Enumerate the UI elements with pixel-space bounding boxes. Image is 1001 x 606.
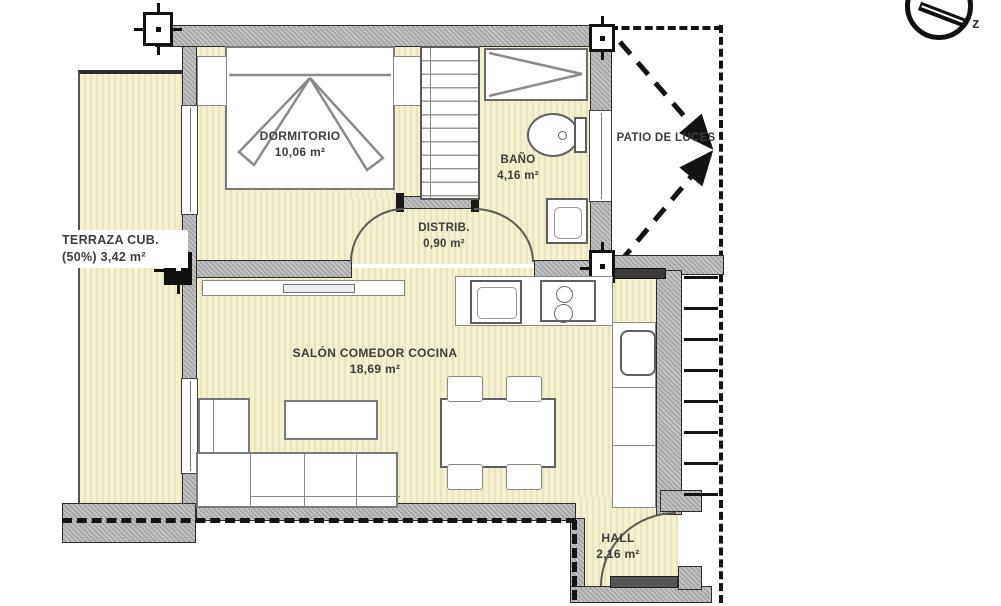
sideboard-detail [283, 284, 355, 293]
site-boundary-bottom [62, 518, 576, 523]
pillar-center-mark [156, 27, 161, 32]
counter-divider [613, 387, 655, 388]
room-area: 2,16 m² [578, 546, 658, 562]
chair [506, 376, 542, 402]
coffee-table [284, 400, 378, 440]
pillar [589, 24, 615, 52]
window-mullion [601, 113, 602, 199]
dining-table [440, 398, 556, 468]
room-terraza [78, 70, 188, 512]
kitchen-sink-unit [470, 280, 522, 324]
patio-diagonal-lines [610, 28, 722, 276]
pillar-axis-tick [601, 242, 604, 251]
room-label-patio: PATIO DE LUCES [612, 131, 720, 147]
nightstand-left [197, 56, 227, 106]
pillar-center-mark [600, 264, 605, 269]
sofa [196, 452, 398, 508]
sofa-seat-divider [356, 454, 357, 506]
kitchen-sink-right [620, 330, 656, 376]
bathroom-sink [546, 198, 588, 244]
room-label-bano: BAÑO 4,16 m² [468, 153, 568, 184]
room-area: 10,06 m² [225, 144, 375, 160]
armchair-armrest [213, 400, 214, 452]
room-label-dormitorio: DORMITORIO 10,06 m² [225, 128, 375, 160]
toilet-flush-button [558, 131, 567, 140]
room-name: SALÓN COMEDOR COCINA [275, 345, 475, 361]
pillar-axis-tick [157, 45, 160, 55]
kitchen-sink-basin [477, 287, 517, 319]
sofa-seat-divider [250, 454, 251, 506]
window-kitchen-patio [614, 268, 666, 279]
toilet [527, 113, 579, 157]
wardrobe-divider [430, 48, 431, 198]
room-name: TERRAZA CUB. [62, 232, 188, 249]
pillar [143, 12, 173, 46]
room-name: HALL [578, 530, 658, 546]
burner [554, 304, 573, 323]
sofa-seat-divider [304, 454, 305, 506]
sink-basin [554, 207, 582, 239]
hob [540, 280, 596, 322]
counter-divider [613, 445, 655, 446]
chair [447, 376, 483, 402]
pillar-axis-tick [157, 3, 160, 13]
stairs [684, 276, 718, 518]
window-mullion [190, 108, 191, 212]
room-name: DISTRIB. [398, 221, 490, 237]
pillar-axis-tick [134, 28, 144, 31]
entrance-door-leaf [610, 576, 678, 588]
chair [506, 464, 542, 490]
room-label-hall: HALL 2,16 m² [578, 530, 658, 562]
site-boundary-step [572, 520, 577, 600]
pillar-axis-tick [601, 16, 604, 25]
room-label-salon: SALÓN COMEDOR COCINA 18,69 m² [275, 345, 475, 377]
chair [447, 464, 483, 490]
armchair [198, 398, 250, 454]
pillar-axis-tick [177, 284, 180, 294]
pillar-axis-tick [154, 269, 165, 272]
room-name: DORMITORIO [225, 128, 375, 144]
window-bano-patio [589, 110, 612, 202]
burner [556, 286, 573, 303]
sofa-front-edge [250, 496, 400, 497]
window-mullion [190, 381, 191, 471]
wall-hall-right-bottom [678, 566, 702, 590]
toilet-cistern [574, 117, 587, 153]
bed [225, 46, 395, 190]
room-label-terraza: TERRAZA CUB. (50%) 3,42 m² [60, 230, 188, 268]
room-area: (50%) 3,42 m² [62, 249, 188, 266]
pillar-axis-tick [580, 267, 590, 270]
room-area: 0,90 m² [398, 237, 490, 253]
room-label-distrib: DISTRIB. 0,90 m² [398, 221, 490, 252]
wall-top [155, 25, 612, 47]
wall-dormitorio-salon [196, 260, 352, 278]
shower-icon [486, 50, 586, 99]
room-name: BAÑO [468, 153, 568, 169]
pillar-axis-tick [172, 28, 182, 31]
compass-label: z [972, 14, 980, 34]
wall-salon-right [656, 270, 682, 515]
bed-linen-icon [227, 48, 393, 188]
room-area: 18,69 m² [275, 361, 475, 377]
shower-tray [484, 48, 588, 101]
nightstand-right [393, 56, 421, 106]
floor-plan: z DORMITORIO 10,06 m² BAÑO 4,16 m² PATIO… [0, 0, 1001, 606]
window-terraza-dormitorio [181, 105, 198, 215]
wall-terraza-bottom [62, 503, 196, 543]
pillar-center-mark [600, 36, 605, 41]
sideboard [202, 280, 405, 296]
room-area: 4,16 m² [468, 169, 568, 185]
pillar-axis-tick [601, 51, 604, 60]
room-name: PATIO DE LUCES [612, 131, 720, 147]
